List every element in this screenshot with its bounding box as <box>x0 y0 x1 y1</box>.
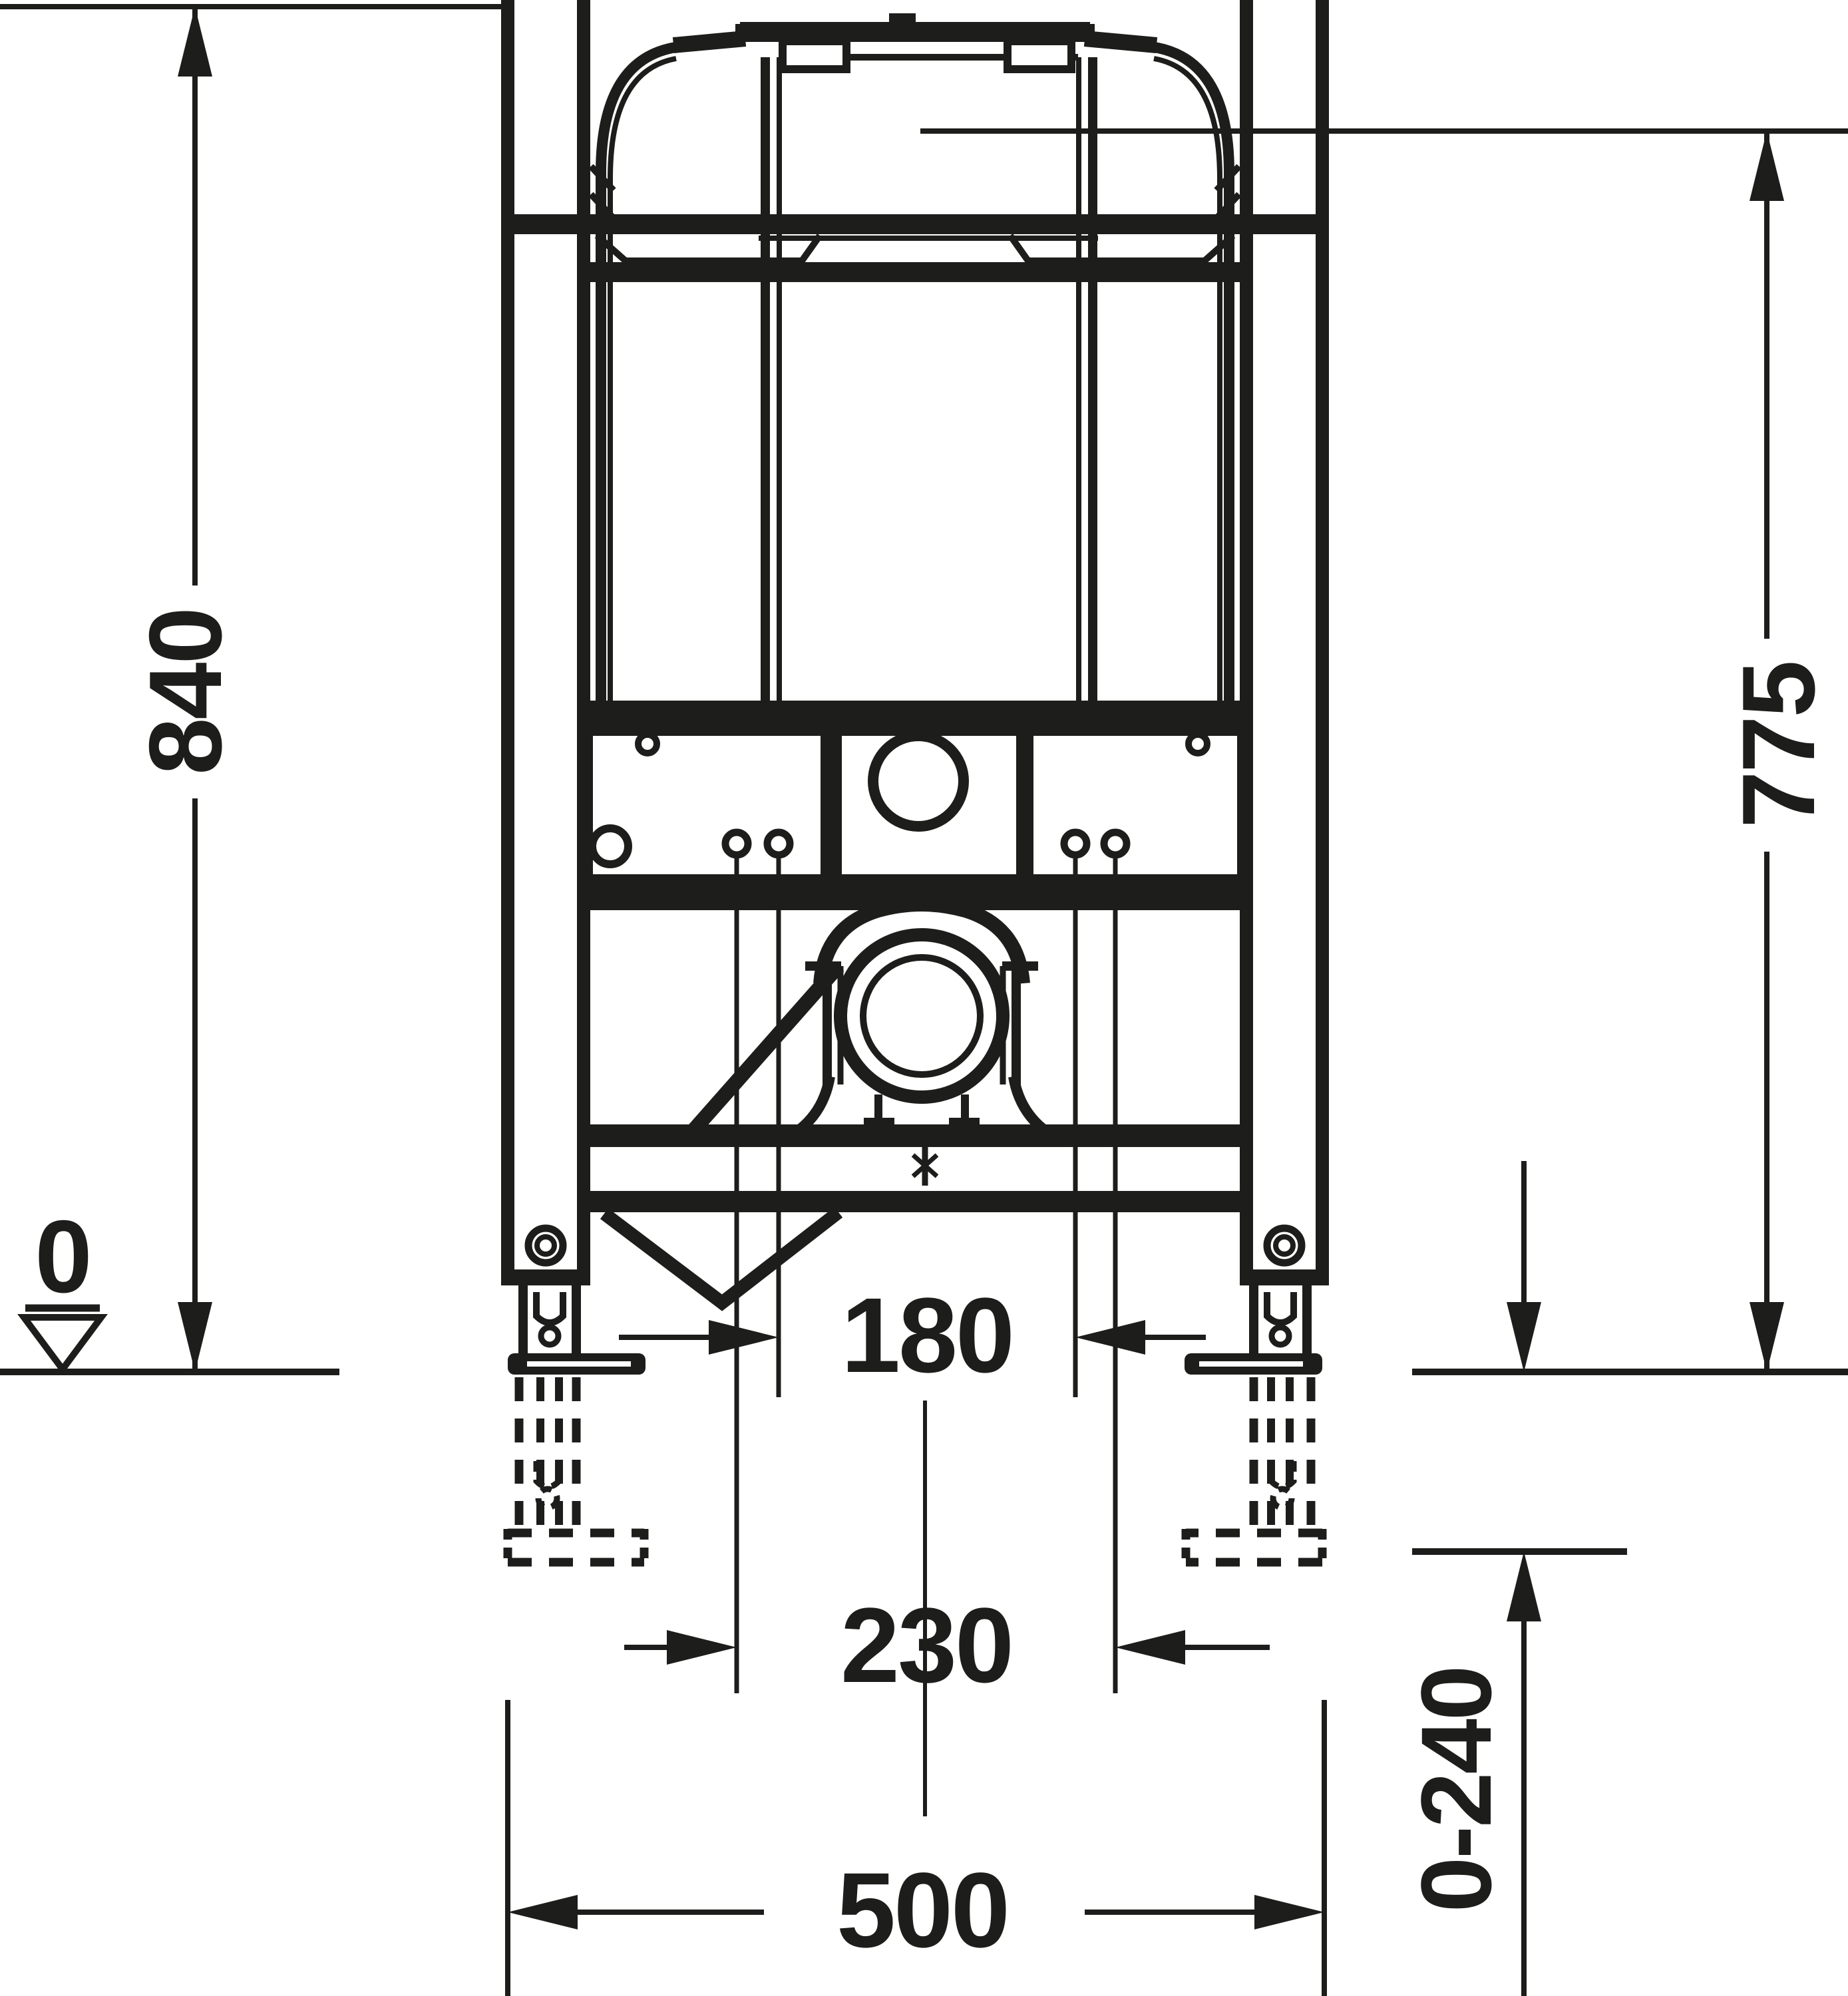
dim-230-label: 230 <box>840 1585 1012 1705</box>
datum-zero-label: 0 <box>35 1199 90 1314</box>
lid-clip-left <box>783 41 846 69</box>
arrowhead-down-icon <box>1750 1302 1784 1372</box>
flush-pipe-box <box>834 729 1023 882</box>
cistern-right-shoulder <box>1085 39 1157 45</box>
dim-0-240: 0-240 <box>1400 1161 1627 1996</box>
foot-washer <box>528 1228 563 1263</box>
lid-clip-right <box>1008 41 1071 69</box>
arrowhead-up-icon <box>1750 131 1784 201</box>
drain-hook-right <box>1014 1077 1047 1132</box>
installation-frame-diagram: 840 0 775 180 <box>0 0 1848 1996</box>
cistern-right-edge <box>1131 44 1229 701</box>
cistern-left-edge <box>601 44 699 701</box>
arrowhead-left-icon <box>508 1895 578 1929</box>
drain-hook-left <box>796 1077 830 1132</box>
cistern-seam-band <box>512 214 1320 234</box>
dim-0-240-label: 0-240 <box>1400 1667 1512 1913</box>
cistern-left-inner-edge <box>610 59 676 701</box>
cross-member-upper <box>584 1124 1246 1147</box>
datum-triangle-icon <box>24 1317 101 1369</box>
arrowhead-right-icon <box>667 1630 737 1665</box>
centerline-mark <box>913 1146 937 1186</box>
drain-bend <box>693 904 1047 1132</box>
arrowhead-down-icon <box>1507 1302 1541 1372</box>
dim-180-label: 180 <box>841 1275 1013 1395</box>
dim-840: 840 <box>0 7 508 1372</box>
arrowhead-left-icon <box>1115 1630 1185 1665</box>
arrowhead-up-icon <box>1507 1552 1541 1621</box>
arrowhead-down-icon <box>178 1302 212 1372</box>
dim-500: 500 <box>508 1700 1324 1996</box>
shell-hatch-marks <box>591 166 1239 218</box>
arrowhead-up-icon <box>178 7 212 77</box>
foot-extension-dashed <box>508 1377 644 1566</box>
dim-775-label: 775 <box>1721 662 1836 828</box>
cross-member-lower <box>584 1191 1246 1212</box>
cistern-left-shoulder <box>673 39 745 45</box>
frame <box>508 0 1322 1816</box>
cistern-lid-nub <box>889 13 916 31</box>
dim-500-label: 500 <box>836 1850 1008 1969</box>
mounting-plate <box>584 729 1246 910</box>
arrowhead-left-icon <box>1075 1320 1145 1355</box>
mounting-plate-right <box>1029 731 1242 879</box>
right-rail <box>1246 0 1322 1279</box>
dim-840-label: 840 <box>128 609 243 775</box>
cistern-lower-seam-band <box>584 262 1246 282</box>
rail-bottom-cap <box>508 1269 584 1284</box>
arrowhead-right-icon <box>1254 1895 1324 1929</box>
right-foot <box>1185 1228 1322 1566</box>
cistern <box>512 13 1320 730</box>
arrowhead-right-icon <box>709 1320 779 1355</box>
drawing-canvas: 840 0 775 180 <box>0 0 1848 1996</box>
funnel-bracket <box>604 1212 838 1303</box>
left-foot <box>508 1228 646 1566</box>
left-rail <box>508 0 584 1279</box>
cistern-right-inner-edge <box>1154 59 1220 701</box>
foot-clamp <box>536 1292 563 1323</box>
